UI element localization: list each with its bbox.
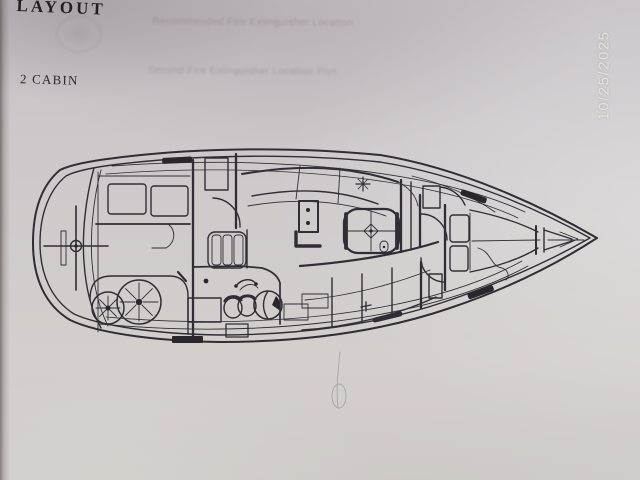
hanging-locker-hatched xyxy=(205,158,228,190)
photo-of-layout-page: Recommended Fire Extinguisher Location S… xyxy=(0,0,640,480)
saloon-table xyxy=(344,209,399,253)
stern-swim-platform xyxy=(61,168,108,328)
starboard-settee xyxy=(242,166,418,216)
spoked-wheel-icon xyxy=(92,292,124,324)
aft-cabin xyxy=(90,160,193,338)
port-settee xyxy=(284,242,438,330)
berth-cushion xyxy=(450,246,468,271)
bottle-glyph xyxy=(380,241,388,252)
companionway-steps xyxy=(208,232,246,268)
door-swing-arc xyxy=(421,214,447,240)
companionway xyxy=(205,154,247,268)
hanging-locker-hatched xyxy=(423,186,440,208)
boat-layout-drawing xyxy=(0,0,640,480)
galley-round-sink xyxy=(254,291,282,319)
berth-cushion xyxy=(450,215,469,242)
mast-star-symbol xyxy=(356,177,370,191)
head-compartment xyxy=(420,186,465,308)
berth-cushion xyxy=(151,186,188,216)
bleedthrough-keel-line xyxy=(332,352,346,408)
galley-double-sink xyxy=(224,296,256,318)
berth-cushion xyxy=(108,184,146,214)
faucet-arc xyxy=(234,280,258,290)
